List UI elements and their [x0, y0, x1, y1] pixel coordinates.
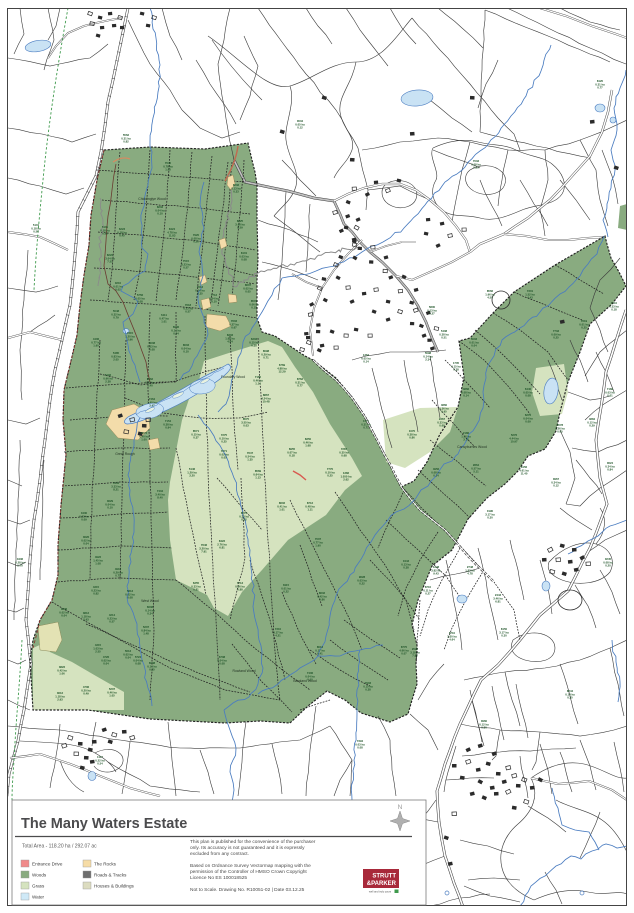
svg-text:permission of the Controller o: permission of the Controller of HMSO Cro… — [190, 869, 307, 875]
svg-text:The Many Waters Estate: The Many Waters Estate — [21, 816, 187, 832]
svg-text:Not to Scale. Drawing No. R10: Not to Scale. Drawing No. R10051-02 | Da… — [190, 887, 305, 893]
svg-text:Water: Water — [32, 895, 45, 900]
svg-text:excluded from any contract.: excluded from any contract. — [190, 851, 249, 857]
svg-text:Rowland Wood: Rowland Wood — [233, 669, 256, 673]
svg-text:Total Area - 118.20 ha / 292.0: Total Area - 118.20 ha / 292.07 ac — [22, 844, 97, 850]
svg-text:&PARKER: &PARKER — [367, 881, 397, 887]
svg-text:STRUTT: STRUTT — [372, 874, 396, 880]
svg-text:Houses & Buildings: Houses & Buildings — [94, 884, 135, 889]
svg-text:Licence No ES 100018525: Licence No ES 100018525 — [190, 875, 247, 881]
svg-text:Foundary Wood: Foundary Wood — [221, 375, 245, 379]
svg-text:N: N — [398, 804, 403, 811]
svg-text:only. Its accuracy is not guar: only. Its accuracy is not guaranteed and… — [190, 845, 305, 851]
svg-text:Entrance Drive: Entrance Drive — [32, 862, 63, 867]
svg-text:Chiddinglye Wood: Chiddinglye Wood — [138, 197, 166, 201]
svg-text:Woods: Woods — [32, 873, 47, 878]
svg-text:well and truly yours: well and truly yours — [369, 890, 392, 894]
svg-text:Based on Ordnance Survey Vecto: Based on Ordnance Survey Vectormap mappi… — [190, 863, 311, 869]
svg-text:Roads & Tracks: Roads & Tracks — [94, 873, 127, 878]
svg-text:Great Rough: Great Rough — [115, 452, 135, 456]
svg-text:Grass: Grass — [32, 884, 45, 889]
svg-text:The Rocks: The Rocks — [94, 862, 117, 867]
svg-text:This plan is published for the: This plan is published for the convenien… — [190, 839, 316, 845]
svg-text:West Wood: West Wood — [141, 599, 159, 603]
svg-text:Barnland Wood: Barnland Wood — [293, 679, 316, 683]
svg-text:Cansyburnes Wood: Cansyburnes Wood — [457, 445, 487, 449]
